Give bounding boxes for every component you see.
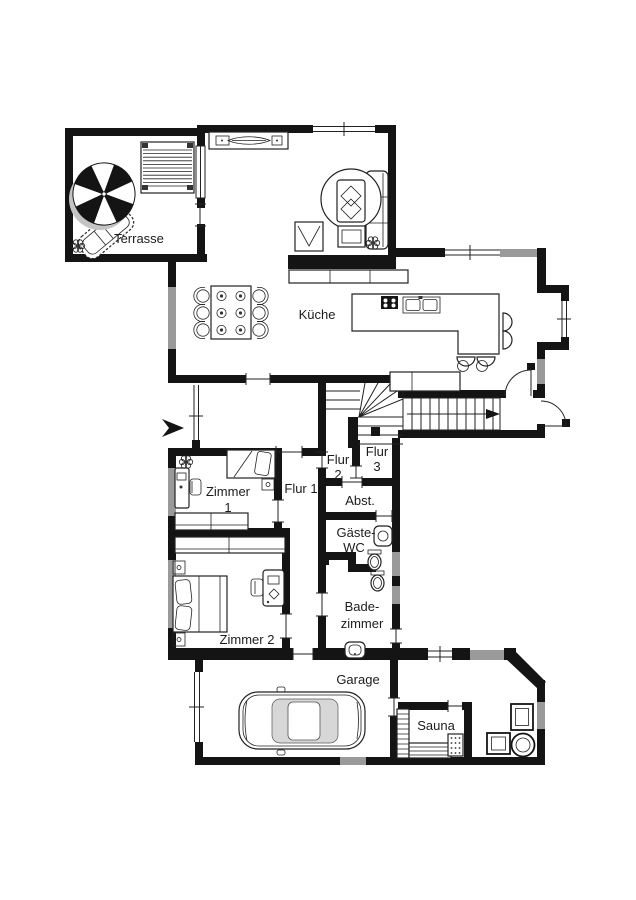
hot-tub-icon [512,734,535,757]
room-label-badezimmer-line2: zimmer [341,616,384,631]
room-label-terrasse: Terrasse [114,231,164,246]
room-label-badezimmer-line1: Bade- [345,599,380,614]
room-label-zimmer2: Zimmer 2 [220,632,275,647]
side-table-icon [295,222,323,251]
floor-plan: Terrasse Küche Flur 1 Flur 2 Flur 3 Abst… [0,0,636,900]
lounge-chair-icon [487,733,510,754]
car-icon [239,687,365,755]
slatted-bench-icon [141,142,194,193]
room-label-sauna: Sauna [417,718,455,733]
room-label-zimmer1-line1: Zimmer [206,484,251,499]
kitchen-counter-icon [289,270,408,283]
room-label-zimmer1-line2: 1 [224,500,231,515]
sauna-heater-icon [448,734,463,756]
sauna-bench-icon [409,743,451,758]
wardrobe-icon [175,537,285,553]
room-label-flur3-line2: 3 [373,459,380,474]
window-icon [196,146,205,198]
shower-icon [323,559,329,565]
sauna-bench-icon [397,709,409,758]
room-label-flur2-line1: Flur [327,452,350,467]
room-label-gaeste-wc-line2: WC [343,540,365,555]
desk-icon [263,570,284,606]
cooktop-icon [381,296,398,309]
room-label-flur2-line2: 2 [334,467,341,482]
stair-wall [348,417,358,448]
room-label-abstellraum: Abst. [345,493,375,508]
double-bed-icon [173,576,227,632]
room-label-flur3-line1: Flur [366,444,389,459]
stair-post [371,427,380,436]
single-bed-icon [227,450,275,478]
bench-icon [390,372,460,391]
wardrobe-icon [175,513,248,530]
sideboard-icon [209,132,288,149]
lounge-chair-icon [511,704,533,730]
room-label-kueche: Küche [299,307,336,322]
room-label-gaeste-wc-line1: Gäste- [336,525,375,540]
room-label-garage: Garage [336,672,379,687]
desk-icon [175,468,189,508]
washbasin-icon [345,642,365,658]
washbasin-icon [374,526,392,546]
room-label-flur1: Flur 1 [284,481,317,496]
